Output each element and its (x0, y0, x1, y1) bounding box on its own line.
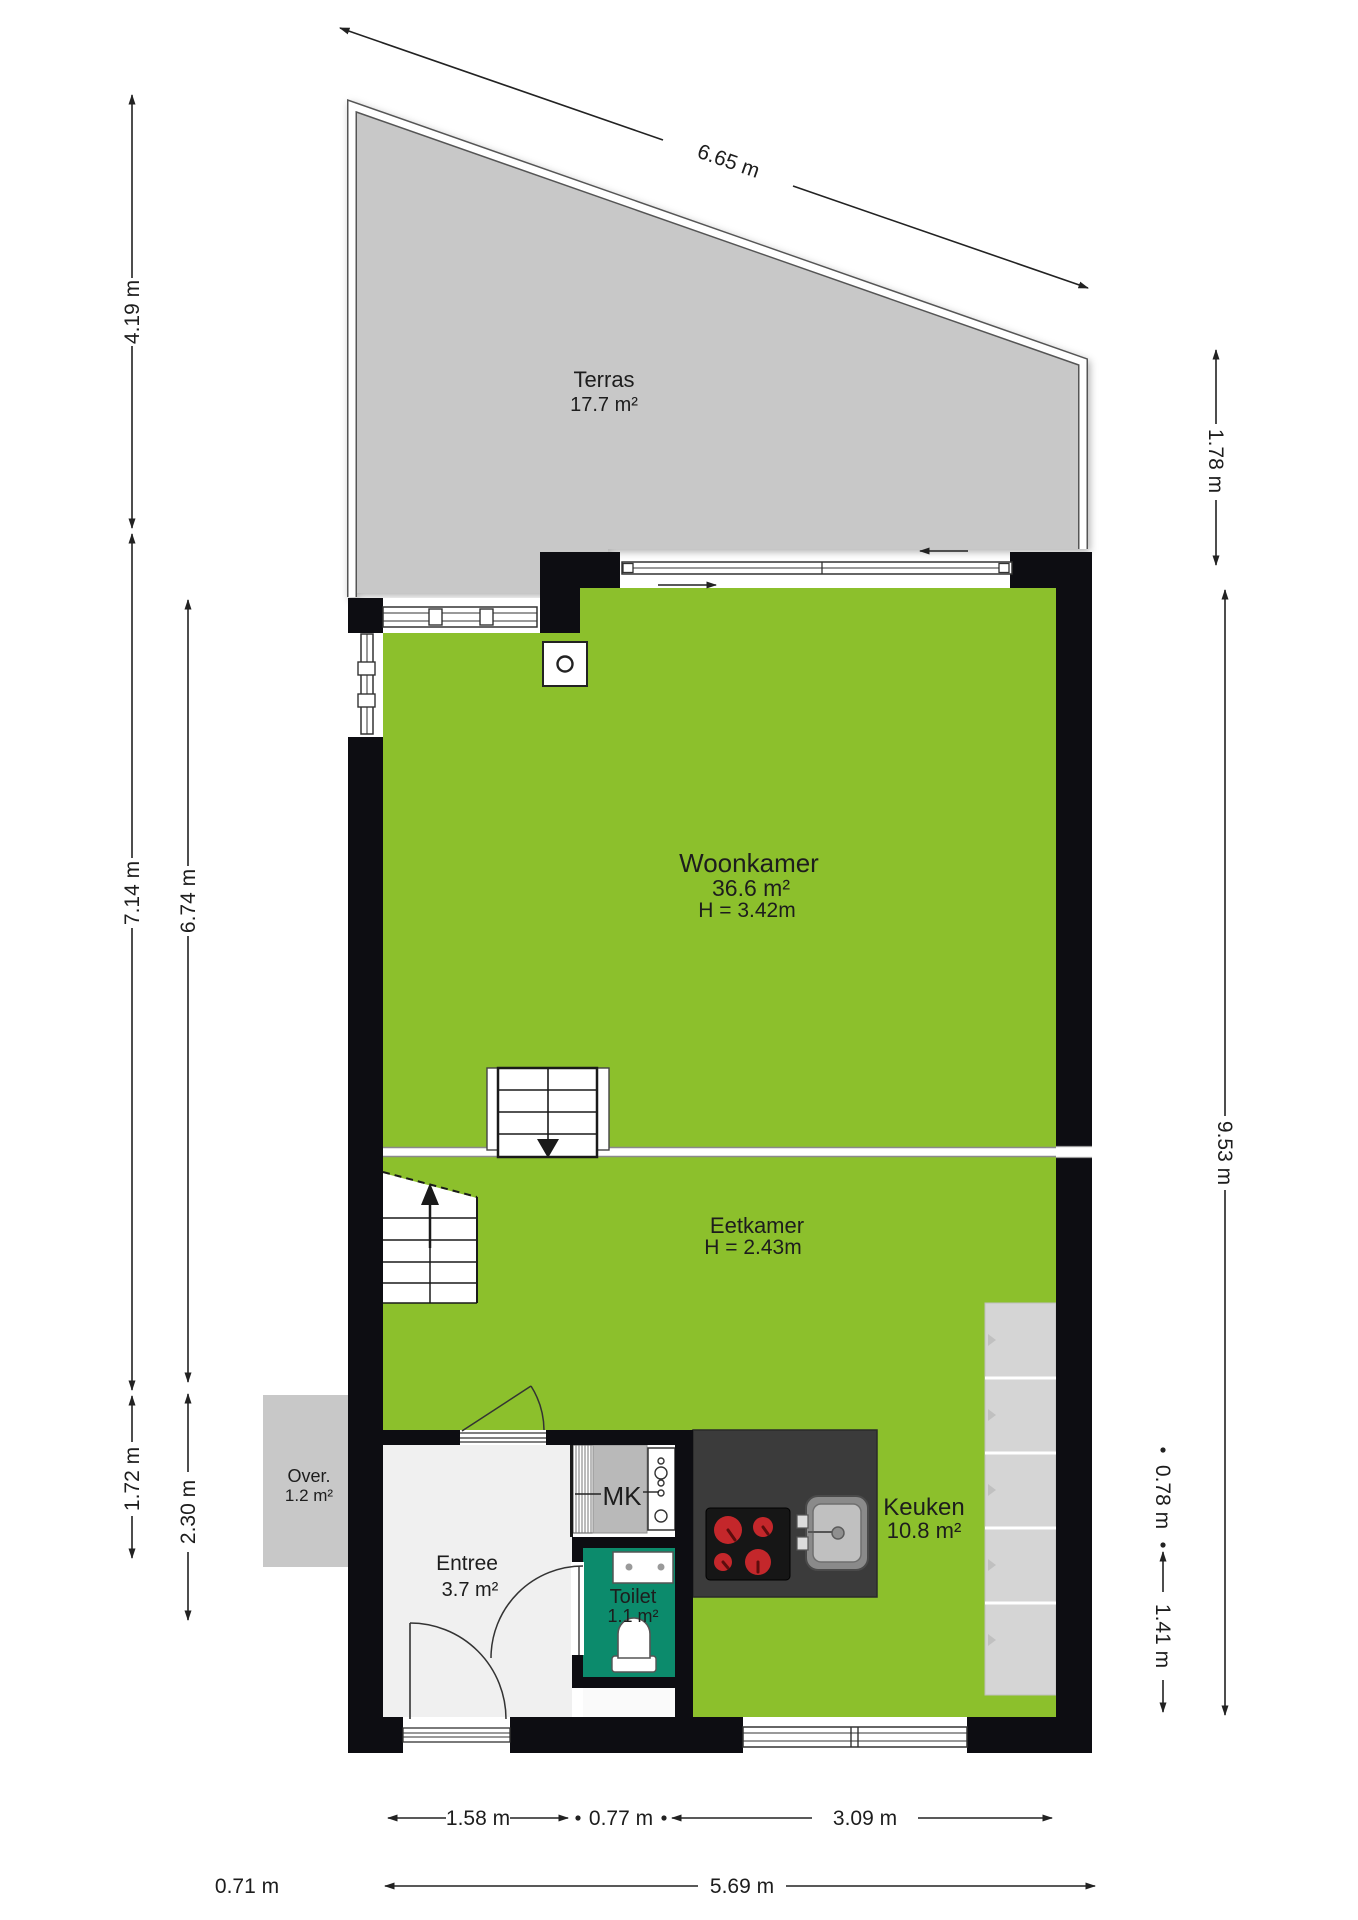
wall-step-lower (540, 588, 580, 633)
dim-078-label: 0.78 m (1151, 1465, 1174, 1529)
terrace-floor (352, 106, 1083, 593)
dim-158-label: 1.58 m (446, 1807, 510, 1830)
dim-178-label: 1.78 m (1204, 429, 1227, 493)
sink-icon (797, 1496, 868, 1570)
wall-bottom-left (348, 1717, 403, 1753)
terrace-name-label: Terras (573, 367, 634, 392)
dim-714-label: 7.14 m (121, 861, 144, 925)
wall-corner-terrace (348, 598, 383, 633)
dimensions-right: 1.78 m 9.53 m 0.78 m 1.41 m (1151, 350, 1236, 1715)
entree-area-label: 3.7 m² (442, 1579, 499, 1601)
wall-kitchen-separator (675, 1430, 693, 1717)
wall-entree-top-left (383, 1430, 460, 1445)
stairs-down (487, 1068, 609, 1158)
wall-entree-right-thin (570, 1445, 573, 1537)
kitchen-counter-right (985, 1303, 1056, 1695)
wall-entree-top-right (546, 1430, 693, 1445)
right-wall-break (1056, 1146, 1092, 1158)
keuken-name-label: Keuken (883, 1494, 964, 1521)
kitchen-island (693, 1430, 877, 1597)
eetkamer-name-label: Eetkamer (710, 1213, 804, 1238)
dimension-top-label: 6.65 m (694, 140, 762, 183)
floorplan-drawing: Terras 17.7 m² 6.65 m Over. 1.2 m² (0, 0, 1358, 1920)
wall-bottom-center (510, 1717, 743, 1753)
mk-label: MK (603, 1481, 643, 1511)
keuken-area-label: 10.8 m² (887, 1518, 962, 1543)
wall-toilet-left-lower (572, 1655, 583, 1677)
meter-panel (648, 1448, 675, 1530)
room-divider-line (383, 1147, 1056, 1157)
dim-309-label: 3.09 m (833, 1807, 897, 1830)
dimensions-left: 4.19 m 7.14 m 6.74 m 1.72 m 2.30 m (121, 95, 200, 1620)
floorplan-page: Terras 17.7 m² 6.65 m Over. 1.2 m² (0, 0, 1358, 1920)
dim-953-label: 9.53 m (1213, 1121, 1236, 1185)
wall-bottom-right (967, 1717, 1092, 1753)
sliding-door (622, 551, 1012, 585)
dim-071-label: 0.71 m (215, 1875, 279, 1898)
dimensions-bottom: 1.58 m 0.77 m 3.09 m 0.71 m 5.69 m (215, 1807, 1095, 1898)
dim-569-label: 5.69 m (710, 1875, 774, 1898)
over-area-label: 1.2 m² (285, 1486, 334, 1505)
void-space (583, 1688, 675, 1717)
dim-674-label: 6.74 m (177, 869, 200, 933)
dim-419-label: 4.19 m (121, 280, 144, 344)
window-bottom (743, 1717, 967, 1753)
dim-230-label: 2.30 m (177, 1480, 200, 1544)
wall-step-upper (540, 552, 620, 588)
window-left (348, 633, 383, 737)
window-top-left (383, 598, 540, 633)
column-object (543, 642, 587, 686)
entree-name-label: Entree (436, 1552, 498, 1575)
dim-077-label: 0.77 m (589, 1807, 653, 1830)
eetkamer-height-label: H = 2.43m (704, 1236, 801, 1259)
wall-toilet-top (572, 1537, 675, 1548)
terrace (352, 106, 1083, 597)
dim-141-label: 1.41 m (1151, 1604, 1174, 1668)
woonkamer-name-label: Woonkamer (679, 848, 819, 878)
wall-toilet-bottom (572, 1677, 675, 1688)
over-name-label: Over. (287, 1466, 330, 1486)
wall-left (348, 737, 383, 1753)
woonkamer-area-label: 36.6 m² (712, 875, 790, 901)
wall-toilet-left-upper (572, 1548, 583, 1562)
dim-172-label: 1.72 m (121, 1447, 144, 1511)
cooktop-icon (706, 1508, 790, 1580)
woonkamer-height-label: H = 3.42m (698, 899, 795, 922)
toilet-area-label: 1.1 m² (607, 1606, 658, 1626)
terrace-area-label: 17.7 m² (570, 394, 638, 416)
toilet-name-label: Toilet (610, 1586, 657, 1608)
